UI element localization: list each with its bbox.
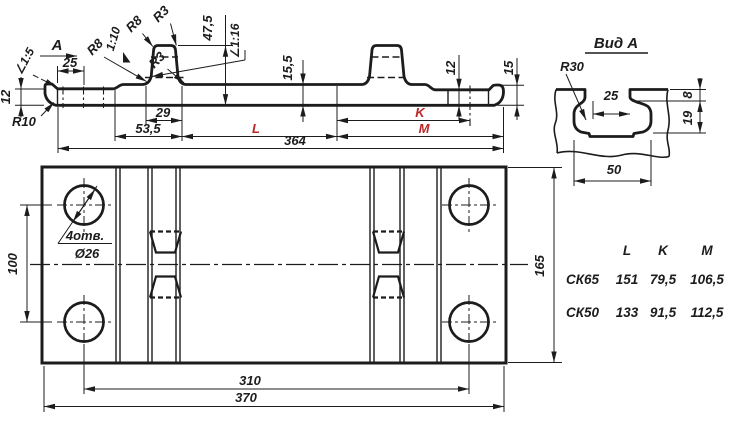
table-row2-k: 91,5 [650,305,677,320]
table-row1-k: 79,5 [650,272,677,287]
view-a-title: Вид А [594,35,638,52]
slope-1-5-label: ∠1:5 [12,45,38,77]
rib-hidden-lines [145,57,407,78]
r3-base-label: R3 [146,48,169,71]
table-row1-l: 151 [616,272,639,287]
slope-1-16-leader [152,60,245,77]
dim-370-label: 370 [235,390,257,405]
profile-view [45,46,504,127]
dim-165-label: 165 [532,254,547,276]
bolt-holes [65,186,489,342]
slope-1-16-label: ∠1:16 [228,23,242,58]
dim-29-label: 29 [155,105,171,120]
r10-leader [41,103,54,117]
dim-15-right-label: 15 [501,60,516,75]
dim-12-left-label: 12 [0,89,13,104]
dim-k-label: K [415,105,426,120]
r3-top-label: R3 [150,2,173,25]
plan-dimensions [20,168,562,413]
plan-view [30,167,528,363]
profile-labels: A ∠1:5 25 12 R10 R8 1:10 R8 R3 R3 47,5 ∠… [0,2,516,148]
r30-label: R30 [560,59,585,74]
dim-310-label: 310 [239,373,261,388]
table-header-m: M [701,243,713,258]
table-row1-m: 106,5 [690,272,724,287]
engineering-drawing-rail-baseplate: A ∠1:5 25 12 R10 R8 1:10 R8 R3 R3 47,5 ∠… [0,0,737,425]
table-row2-m: 112,5 [691,305,724,320]
dim-m-label: M [419,121,431,136]
dim-100-label: 100 [5,252,20,274]
dim-53-5-label: 53,5 [135,121,161,136]
dim-364-label: 364 [284,133,306,148]
r8-upper-label: R8 [123,12,146,35]
dim-15-5-label: 15,5 [280,55,295,81]
r10-label: R10 [12,114,37,129]
viewa-dim-19-label: 19 [680,110,695,125]
hole-centerlines [57,178,496,349]
holes-dia-label: Ø26 [75,246,100,261]
table-row1-name: СК65 [566,272,600,287]
slope-1-10-flag [123,52,131,63]
profile-edge-lines [58,89,489,105]
size-table: L K M СК65 151 79,5 106,5 СК50 133 91,5 … [566,243,724,320]
r3-top-leader [171,24,177,46]
profile-outline [45,46,504,106]
table-header-l: L [623,243,631,258]
dim-25-label: 25 [62,55,78,70]
drawing-canvas: A ∠1:5 25 12 R10 R8 1:10 R8 R3 R3 47,5 ∠… [0,0,737,425]
dim-47-5-label: 47,5 [200,15,215,42]
slope-1-10-label: 1:10 [103,25,124,52]
table-row2-name: СК50 [566,305,600,320]
holes-count-label: 4отв. [65,228,104,243]
r8-upper-leader [143,34,153,47]
r30-leader [566,74,586,120]
table-header-k: K [658,243,669,258]
table-row2-l: 133 [616,305,639,320]
view-a-label: A [51,37,63,54]
plan-labels: 4отв. Ø26 100 165 310 370 [5,228,547,405]
viewa-dim-8-label: 8 [680,91,695,99]
viewa-dim-25-label: 25 [603,88,619,103]
viewa-dim-50-label: 50 [607,162,622,177]
dim-l-label: L [252,121,260,136]
dim-12-right-label: 12 [443,60,458,75]
